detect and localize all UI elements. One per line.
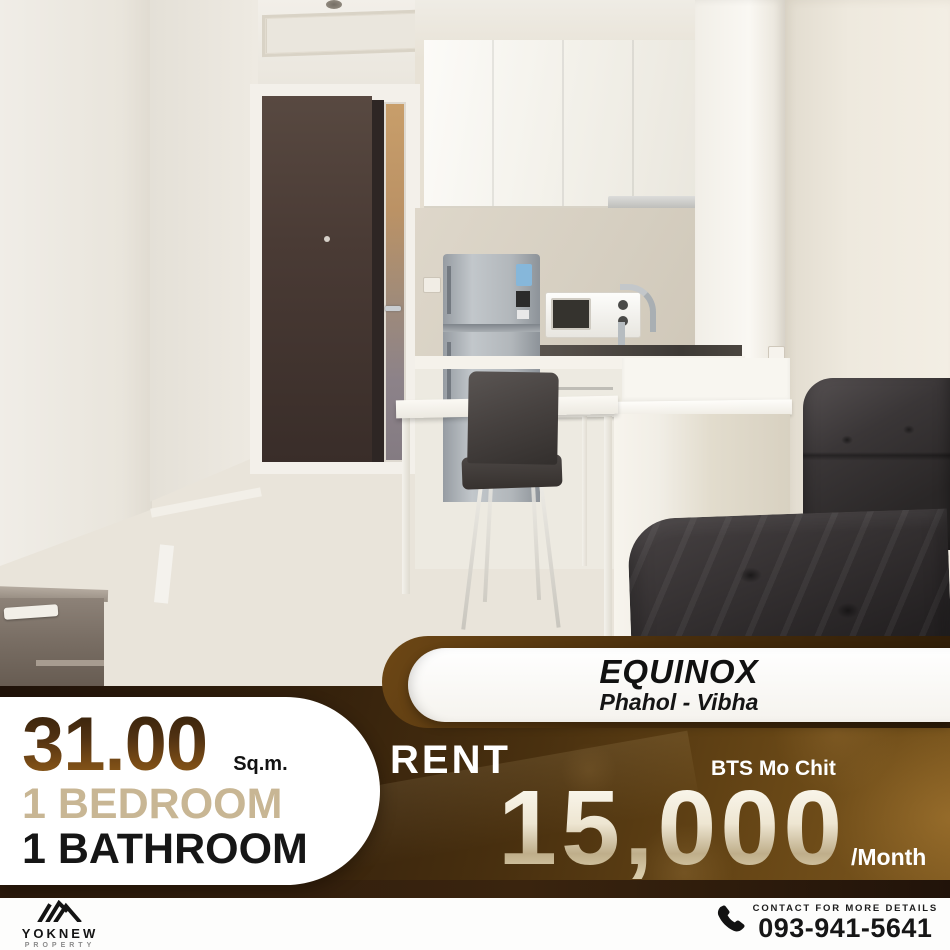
fridge-sticker	[516, 291, 530, 307]
contact-texts: CONTACT FOR MORE DETAILS 093-941-5641	[753, 903, 938, 943]
bar-counter-back-panel	[622, 358, 790, 404]
upper-kitchen-cabinets	[424, 40, 698, 208]
area-row: 31.00 Sq.m.	[22, 707, 380, 783]
brand-division: PROPERTY	[25, 941, 96, 950]
table-leg	[604, 416, 612, 654]
area-value: 31.00	[22, 707, 207, 783]
contact-phone: 093-941-5641	[758, 914, 932, 942]
price-period: /Month	[851, 844, 926, 871]
doorway-shadow	[372, 100, 384, 462]
price-value: 15,000	[498, 778, 846, 879]
area-unit: Sq.m.	[233, 754, 287, 774]
unit-spec-banner: 31.00 Sq.m. 1 BEDROOM 1 BATHROOM	[0, 697, 380, 885]
phone-icon	[715, 905, 745, 940]
project-pill: EQUINOX Phahol - Vibha	[408, 648, 950, 722]
table-leg	[402, 416, 410, 594]
contact-block: CONTACT FOR MORE DETAILS 093-941-5641	[715, 903, 938, 943]
cooktop-sink-strip	[540, 345, 742, 356]
tv-cabinet-shelf	[36, 660, 104, 666]
door-handle	[385, 306, 401, 311]
apartment-photo	[0, 0, 950, 700]
door-peephole	[324, 236, 330, 242]
fridge-freezer-divider	[443, 324, 540, 332]
wall-outlet	[423, 277, 441, 293]
entrance-door	[262, 96, 372, 462]
project-name: EQUINOX	[599, 655, 758, 690]
baseboard-corner	[154, 544, 174, 603]
ceiling-light	[326, 0, 342, 9]
project-location: Phahol - Vibha	[600, 690, 759, 715]
deal-type-label: RENT	[390, 738, 511, 783]
brand-name: YOKNEW	[22, 927, 99, 941]
left-wall	[0, 0, 152, 566]
roof-icon	[37, 900, 83, 927]
dining-chair	[467, 371, 559, 465]
bathrooms-label: 1 BATHROOM	[22, 827, 380, 872]
microwave-window	[551, 298, 591, 330]
brand-logo: YOKNEW PROPERTY	[20, 900, 100, 950]
hallway-wall	[150, 0, 258, 512]
fridge-handle	[447, 266, 451, 314]
fridge-sticker	[516, 264, 532, 286]
fridge-sticker	[517, 310, 529, 319]
property-listing-card: EQUINOX Phahol - Vibha 31.00 Sq.m. 1 BED…	[0, 0, 950, 950]
table-leg	[582, 416, 587, 566]
bedrooms-label: 1 BEDROOM	[22, 783, 380, 827]
footer-bar: YOKNEW PROPERTY CONTACT FOR MORE DETAILS…	[0, 898, 950, 950]
